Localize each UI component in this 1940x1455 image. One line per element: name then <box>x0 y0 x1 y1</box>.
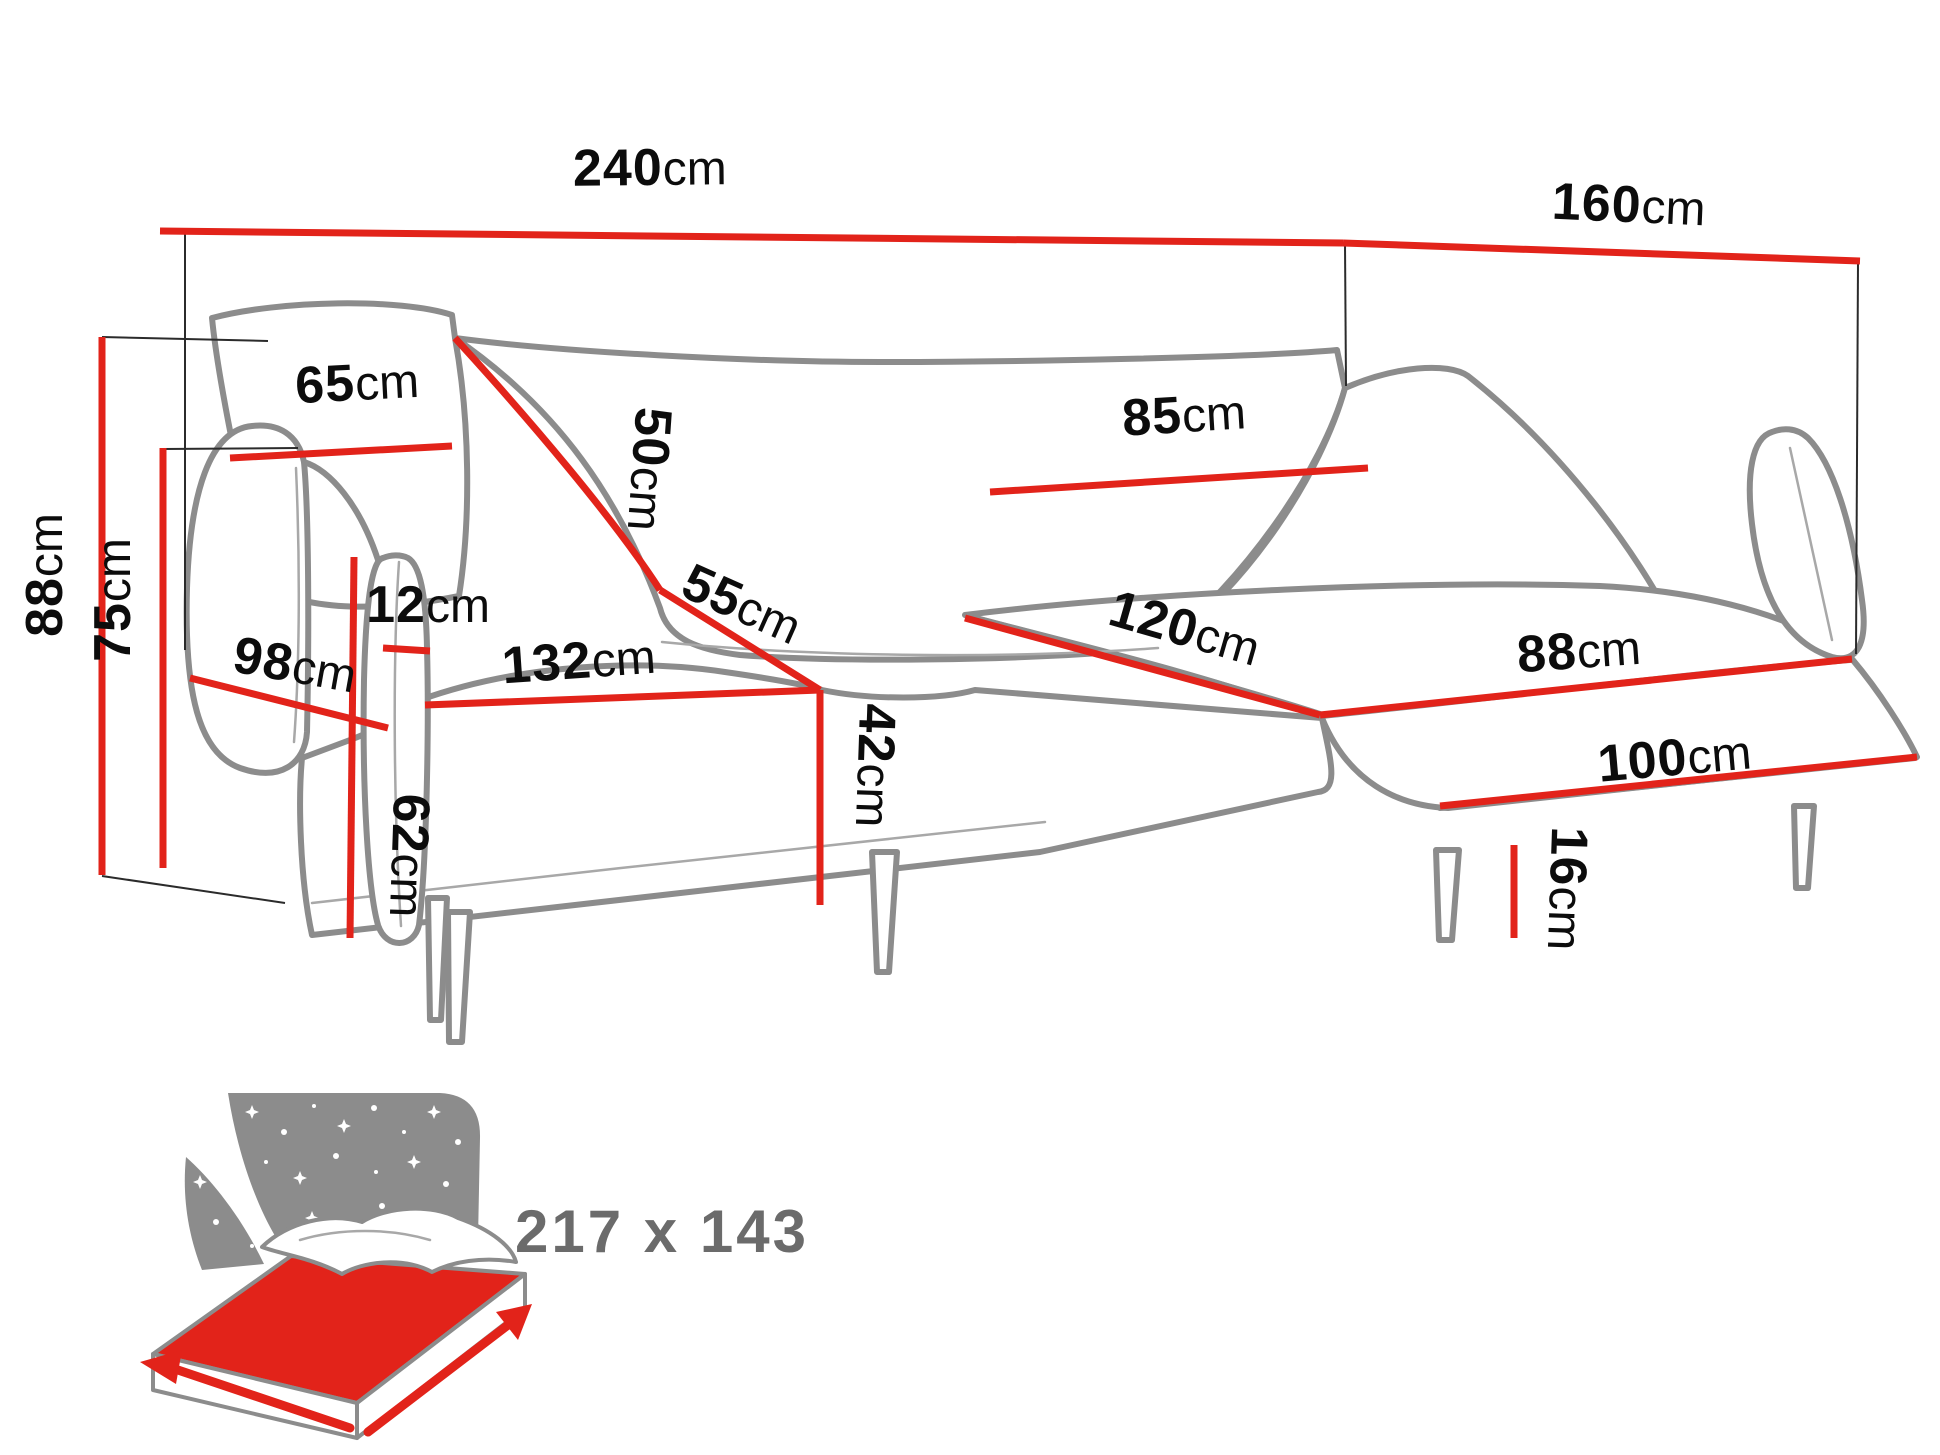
chaise-leg-front <box>1436 850 1459 940</box>
sleeping-area-label: 217 x 143 <box>515 1198 809 1265</box>
dim-leg-height-label: 16cm <box>1536 826 1598 952</box>
dim-chaise-side-length-label: 100cm <box>1595 722 1753 793</box>
dimension-line-total-depth <box>1343 243 1860 261</box>
dim-backrest-height-label: 75cm <box>84 538 142 662</box>
sofa-dimension-diagram: 240cm 160cm 88cm 75cm 65cm 50cm 85cm 12c… <box>0 0 1940 1455</box>
star-icon <box>402 1130 406 1134</box>
star-icon <box>371 1105 377 1111</box>
diagram-canvas: 240cm 160cm 88cm 75cm 65cm 50cm 85cm 12c… <box>0 0 1940 1455</box>
star-icon <box>443 1181 449 1187</box>
star-icon <box>213 1219 219 1225</box>
dim-armrest-front-height-label: 62cm <box>378 793 440 919</box>
guide-75-top-tick <box>163 448 298 449</box>
star-icon <box>240 1200 244 1204</box>
star-icon <box>281 1129 287 1135</box>
dim-back-cushion-right-label: 85cm <box>1120 382 1247 447</box>
guide-corner-drop <box>1345 244 1346 386</box>
dim-total-height-label: 88cm <box>16 513 74 637</box>
star-icon <box>250 1244 254 1248</box>
star-icon <box>374 1170 378 1174</box>
star-icon <box>333 1153 339 1159</box>
sofa-leg-front-left <box>448 912 470 1042</box>
dim-total-depth-label: 160cm <box>1551 173 1707 238</box>
sofa-drawing <box>187 303 1917 1042</box>
dimension-line-armrest-thickness <box>383 648 430 651</box>
guide-floor-left <box>102 876 285 903</box>
star-icon <box>312 1104 316 1108</box>
star-icon <box>379 1203 385 1209</box>
sofa-leg-middle <box>872 852 897 972</box>
sleeping-function-icon: 217 x 143 <box>140 1093 809 1438</box>
chaise-leg-rear <box>1794 806 1814 888</box>
dim-armrest-thickness-label: 12cm <box>366 576 490 634</box>
dimension-line-total-width <box>160 231 1343 243</box>
dim-seat-width-label: 132cm <box>500 627 657 696</box>
dimension-line-armrest-front-height <box>350 557 354 938</box>
dim-total-width-label: 240cm <box>573 138 727 198</box>
star-icon <box>455 1139 461 1145</box>
dim-seat-height-label: 42cm <box>844 703 906 829</box>
armrest-side-panel <box>187 426 309 773</box>
star-icon <box>264 1160 268 1164</box>
dim-chaise-top-length-label: 88cm <box>1515 618 1643 684</box>
dim-back-cushion-left-label: 65cm <box>294 351 421 415</box>
